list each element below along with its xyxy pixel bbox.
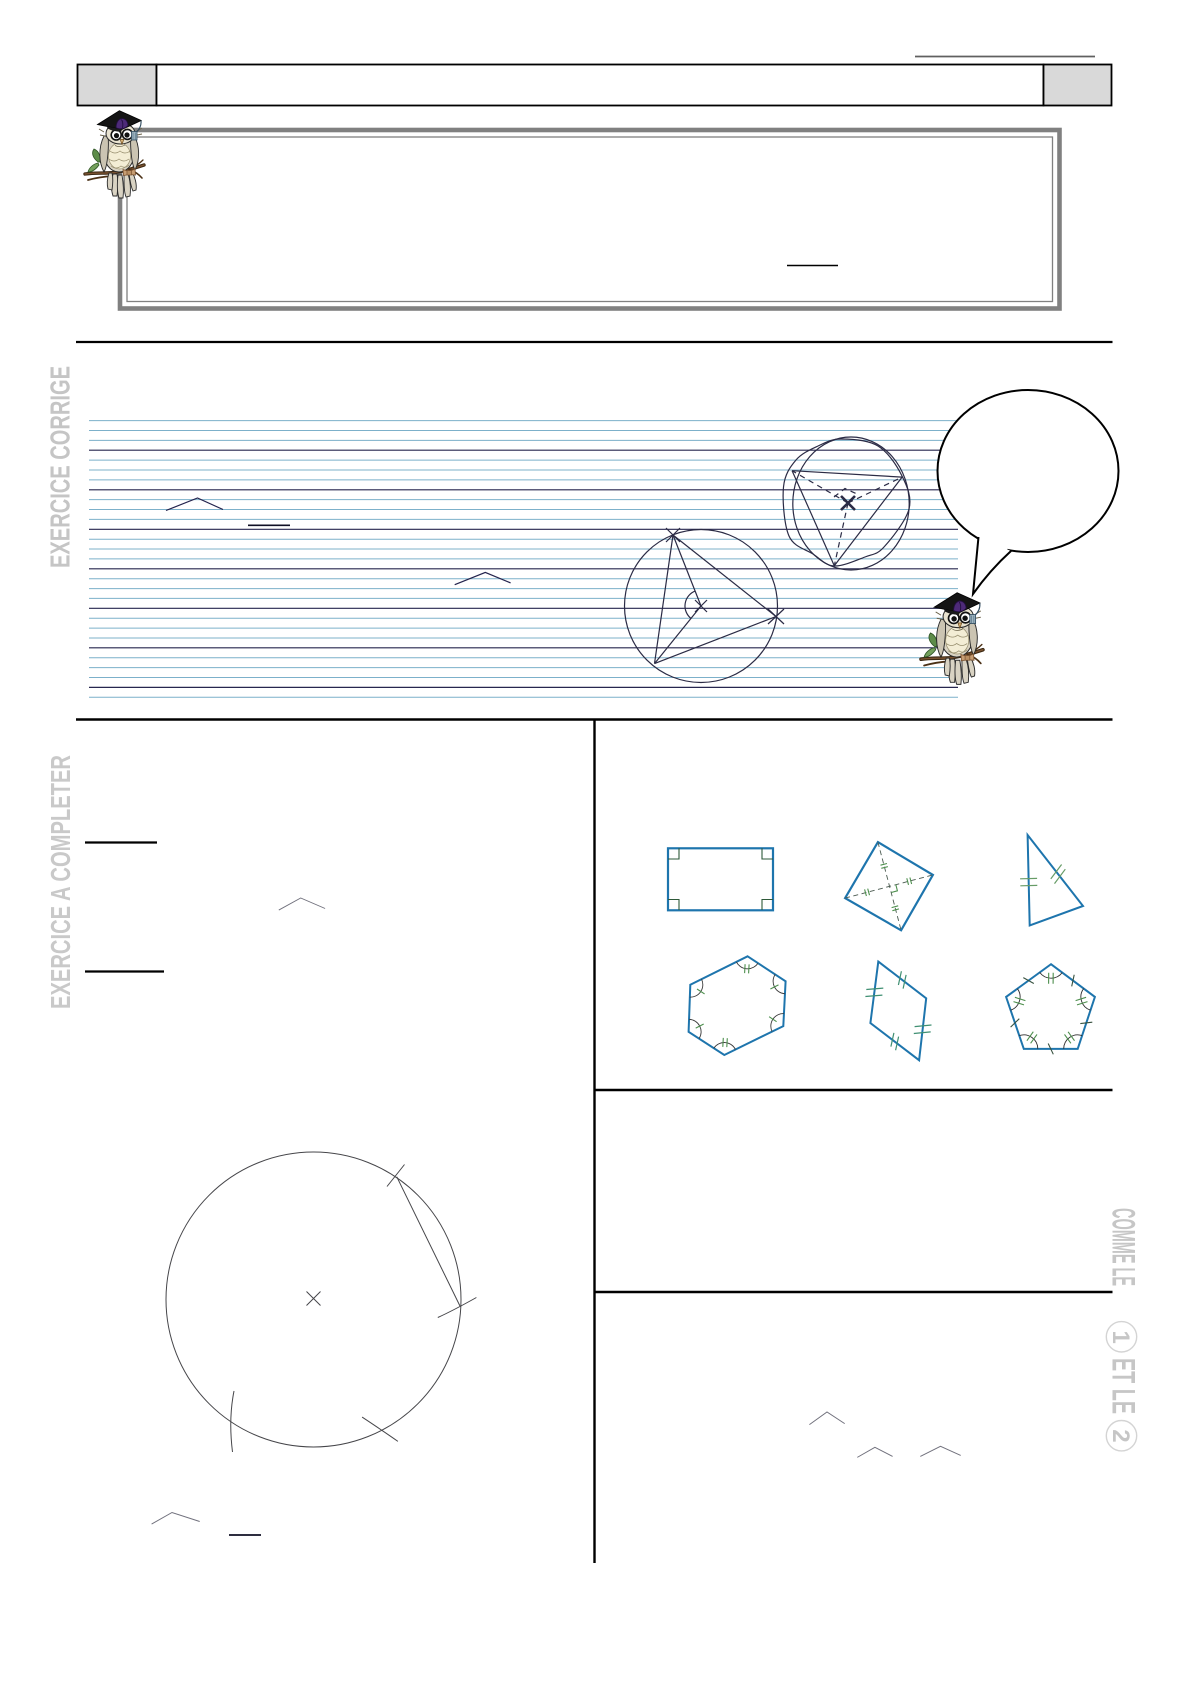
svg-text:EXERCICE A COMPLETER: EXERCICE A COMPLETER xyxy=(45,755,76,1009)
svg-text:1: 1 xyxy=(1107,1331,1134,1344)
svg-text:ET LE: ET LE xyxy=(1106,1358,1142,1414)
svg-text:2: 2 xyxy=(1107,1429,1134,1442)
svg-text:COMME LE: COMME LE xyxy=(1106,1208,1142,1286)
svg-text:EXERCICE CORRIGE: EXERCICE CORRIGE xyxy=(45,366,76,568)
